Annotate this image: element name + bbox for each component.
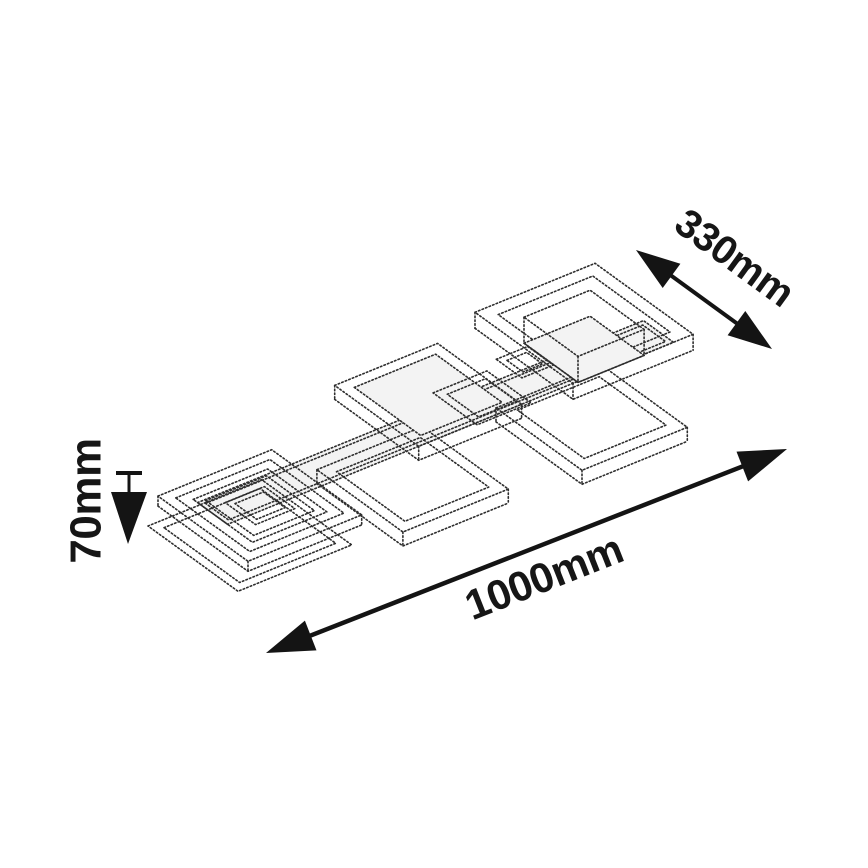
length-dimension-label: 1000mm xyxy=(458,525,629,629)
arrowhead xyxy=(266,621,317,653)
arrowhead xyxy=(728,311,772,349)
arrowhead xyxy=(636,250,680,288)
dimension-line xyxy=(305,464,748,637)
fixture-line xyxy=(496,422,687,484)
height-dimension-indicator xyxy=(111,473,147,544)
fixture-line xyxy=(317,484,508,546)
width-dimension-label: 330mm xyxy=(667,200,802,315)
diagram-svg: 330mm 1000mm 70mm xyxy=(0,0,868,868)
length-dimension-arrow xyxy=(266,449,787,653)
arrowhead xyxy=(737,449,788,481)
arrowhead xyxy=(111,492,147,544)
product-dimension-diagram: 330mm 1000mm 70mm xyxy=(0,0,868,868)
height-dimension-label: 70mm xyxy=(62,438,111,563)
